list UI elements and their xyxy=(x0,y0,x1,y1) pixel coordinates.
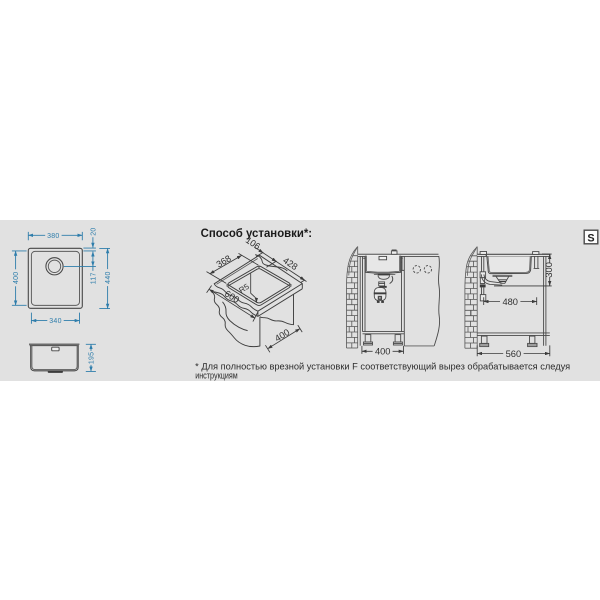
svg-text:Способ установки*:: Способ установки*: xyxy=(201,226,313,240)
svg-text:400: 400 xyxy=(273,327,291,344)
svg-text:340: 340 xyxy=(49,318,61,325)
svg-text:560: 560 xyxy=(506,349,522,359)
svg-text:20: 20 xyxy=(90,227,97,235)
svg-text:117: 117 xyxy=(90,272,97,284)
svg-text:368: 368 xyxy=(215,253,233,269)
svg-text:300: 300 xyxy=(544,262,554,278)
svg-text:400: 400 xyxy=(375,347,391,357)
svg-text:400: 400 xyxy=(13,272,20,284)
svg-text:инструкциям: инструкциям xyxy=(195,371,238,381)
svg-text:R5: R5 xyxy=(237,282,251,295)
svg-text:195: 195 xyxy=(89,352,96,364)
svg-text:* Для полностью врезной устано: * Для полностью врезной установки F соот… xyxy=(195,361,570,371)
svg-text:380: 380 xyxy=(47,233,59,240)
svg-text:480: 480 xyxy=(502,297,518,307)
svg-text:440: 440 xyxy=(105,271,112,283)
svg-text:S: S xyxy=(587,232,594,244)
svg-text:428: 428 xyxy=(281,255,299,272)
